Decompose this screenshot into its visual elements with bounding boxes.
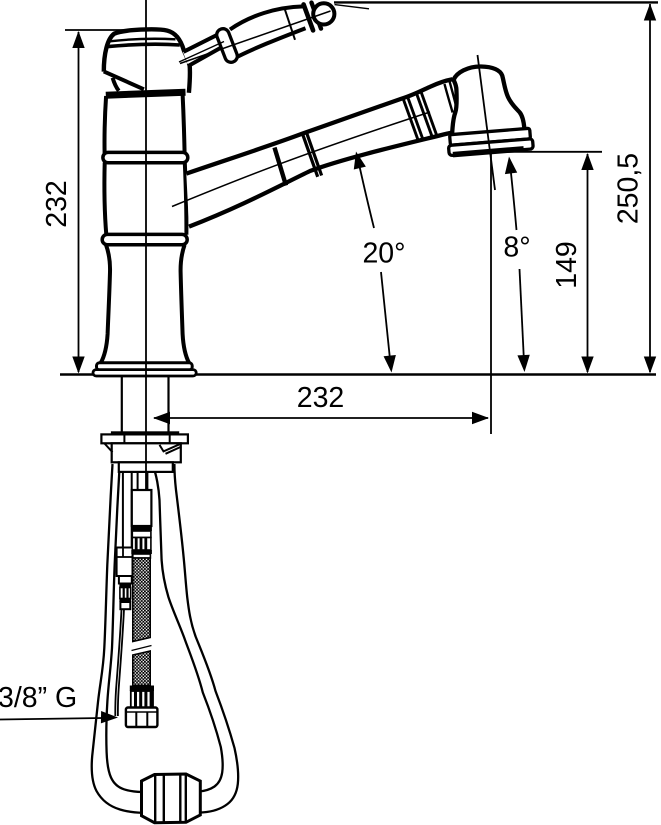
svg-text:8°: 8° bbox=[503, 232, 530, 264]
svg-text:232: 232 bbox=[41, 180, 73, 228]
svg-text:149: 149 bbox=[551, 241, 583, 289]
svg-text:20°: 20° bbox=[362, 238, 405, 270]
svg-text:232: 232 bbox=[297, 382, 345, 414]
svg-text:250,5: 250,5 bbox=[613, 153, 645, 224]
svg-text:3/8” G: 3/8” G bbox=[0, 682, 77, 714]
